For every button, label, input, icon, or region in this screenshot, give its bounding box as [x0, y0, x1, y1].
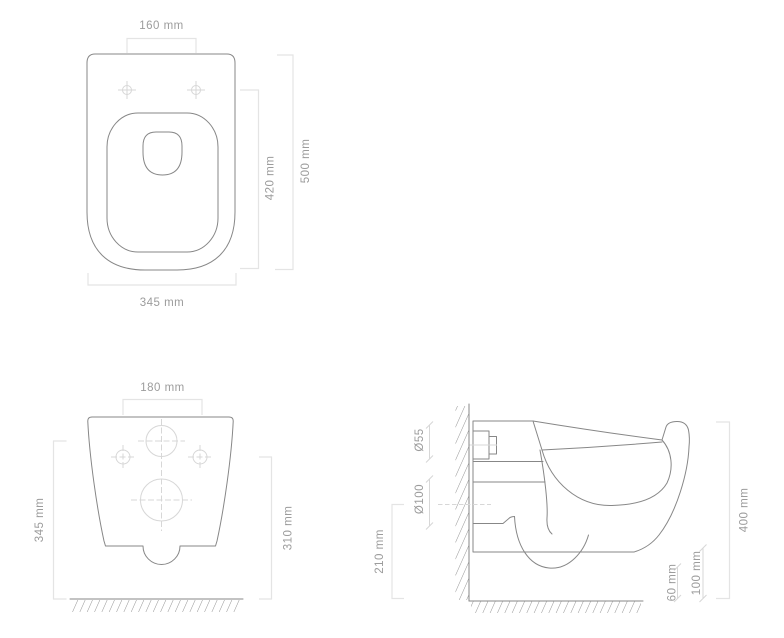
rim-underside-curve: [542, 440, 671, 506]
flush-opening-outline: [143, 132, 182, 175]
dim-line-outlet-diameter: [426, 476, 433, 530]
dim-label-front-clearance: 60 mm: [667, 564, 679, 602]
body-back-bottom-outline: [473, 421, 634, 552]
top-view: 160 mm 420 mm 500 mm 345 mm: [87, 20, 312, 309]
mounting-hole-marker-right: [187, 81, 205, 99]
front-outer-curve: [634, 447, 689, 552]
dim-line-fixing-height: [259, 457, 272, 599]
dim-line-overall-width: [88, 273, 236, 285]
dim-label-bottom-clearance: 100 mm: [691, 551, 703, 596]
dim-label-outlet-diameter: Ø100: [414, 484, 426, 514]
wall-hatching: [456, 406, 469, 600]
fixing-left-crosshair: [111, 445, 135, 469]
dim-label-outlet-axis-height: 210 mm: [374, 529, 386, 574]
front-nose-outline: [662, 422, 689, 448]
bowl-back-curve: [540, 450, 552, 534]
toilet-dimension-diagram: 160 mm 420 mm 500 mm 345 mm 180 mm 345 m…: [0, 0, 784, 638]
hole-crosshair: [187, 81, 205, 99]
dim-label-hole-spacing: 160 mm: [139, 20, 184, 32]
fixing-right-crosshair: [188, 445, 212, 469]
dim-line-hole-spacing: [127, 39, 196, 54]
dim-line-top-width: [123, 400, 202, 416]
seat-ring-outline: [107, 113, 218, 252]
dim-line-inlet-height: [54, 441, 67, 599]
dim-line-overall-height: [716, 422, 730, 599]
body-outline: [88, 417, 233, 564]
trap-curve: [515, 517, 589, 569]
seat-front-line: [542, 442, 662, 450]
mounting-hole-marker-left: [118, 81, 136, 99]
seat-top-line: [533, 421, 662, 440]
rear-view: 180 mm 345 mm 310 mm: [34, 382, 295, 612]
dim-label-inlet-height: 345 mm: [34, 498, 46, 543]
dim-label-overall-width: 345 mm: [140, 297, 185, 309]
dim-label-inner-length: 420 mm: [265, 156, 277, 201]
dim-line-inner-length: [240, 90, 259, 269]
floor-hatching: [471, 602, 641, 614]
dim-line-outlet-axis-height: [392, 505, 404, 599]
dim-label-overall-length: 500 mm: [300, 139, 312, 184]
floor-hatching: [72, 600, 240, 612]
dim-label-inlet-diameter: Ø55: [414, 428, 426, 451]
seat-back-edge: [533, 421, 542, 450]
dim-label-top-width: 180 mm: [140, 382, 185, 394]
dim-label-fixing-height: 310 mm: [283, 506, 295, 551]
dim-line-inlet-diameter: [426, 422, 433, 463]
side-view: Ø55 Ø100 210 mm 400 mm 60 mm 100 mm: [374, 404, 751, 613]
dim-label-overall-height: 400 mm: [739, 488, 751, 533]
dim-line-overall-length: [275, 55, 293, 270]
hole-crosshair: [118, 81, 136, 99]
technical-drawing-page: 160 mm 420 mm 500 mm 345 mm 180 mm 345 m…: [0, 0, 784, 638]
outlet-duct-outline: [473, 482, 545, 524]
